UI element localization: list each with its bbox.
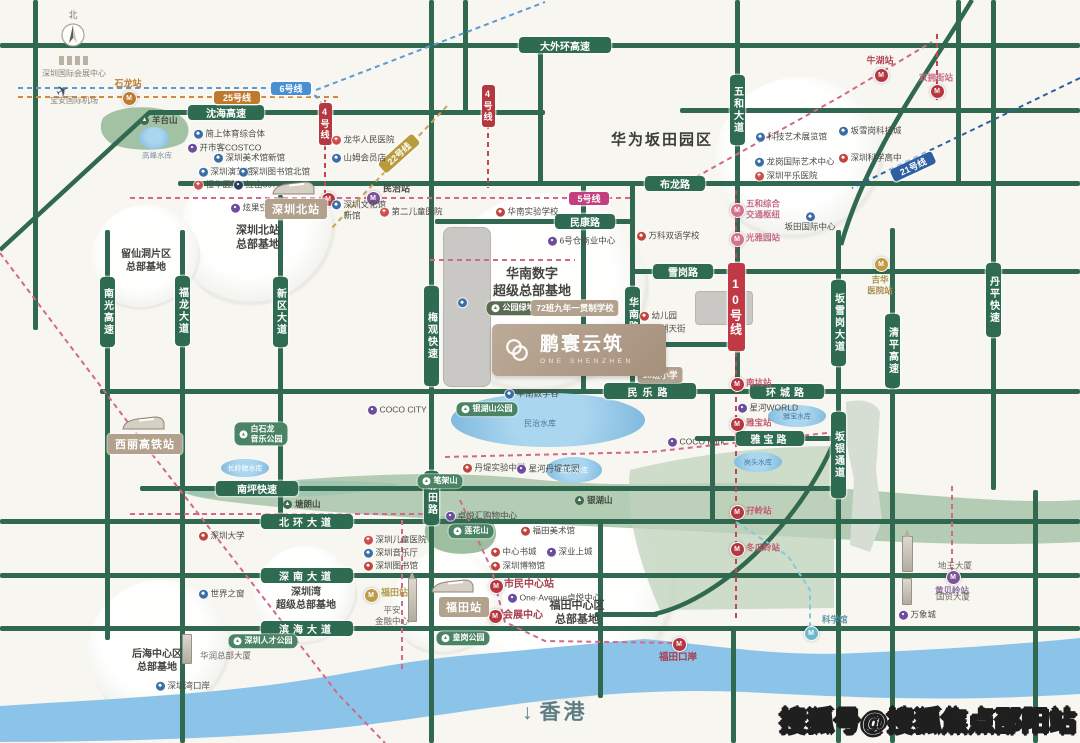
station-label: 光雅园站 (746, 233, 780, 244)
poi-label: 科技艺术展览馆 (768, 132, 828, 143)
park-icon: ▲ (492, 304, 500, 312)
watermark: 搜狐号@搜狐焦点邵阳站 (780, 700, 1076, 739)
poi-icon: ◆ (755, 157, 764, 166)
road (890, 228, 895, 743)
metro-line-badge: 5号线 (569, 192, 609, 205)
poi-icon: ◆ (806, 212, 815, 221)
metro-station-icon: M (730, 542, 745, 557)
poi-icon: ◆ (491, 561, 500, 570)
metro-station-icon: M (730, 417, 745, 432)
map-label: 平安金融中心 (375, 605, 409, 627)
poi-item: ◆ (458, 297, 467, 307)
road-badge: 深南大道 (261, 568, 353, 583)
map-label: 华润总部大厦 (200, 650, 251, 661)
poi-item: ◆简上体育综合体 (194, 129, 266, 140)
poi-item: ◆世界之窗 (199, 589, 245, 600)
poi-icon: ◆ (214, 153, 223, 162)
poi-icon: ◆ (839, 153, 848, 162)
station-label: 雅宝站 (746, 418, 772, 429)
road (731, 628, 736, 743)
poi-label: 深圳图书馆 (376, 561, 419, 572)
road (100, 389, 1080, 394)
road-badge: 布龙路 (645, 176, 705, 191)
tower-icon (408, 578, 417, 622)
map-label: 民乐水库 (560, 466, 588, 475)
metro-station-icon: M (874, 68, 889, 83)
mountain-label: ▲羊台山 (140, 114, 178, 126)
poi-label: 福田美术馆 (533, 526, 576, 537)
poi-icon: ◆ (640, 311, 649, 320)
poi-item: ◆龙岗国际艺术中心 (755, 157, 835, 168)
poi-icon: ◆ (364, 561, 373, 570)
poi-item: ●6号仓商业中心 (548, 236, 616, 247)
poi-item: ◆深圳博物馆 (491, 561, 546, 572)
poi-item: ◆万科双语学校 (637, 231, 700, 242)
park-icon: ▲ (462, 405, 470, 413)
poi-item: ●卓悦汇购物中心 (446, 511, 518, 522)
poi-item: ◆深圳音乐厅 (364, 548, 419, 559)
poi-item: ◆深圳科学高中 (839, 153, 902, 164)
road-badge: 雪岗路 (653, 264, 713, 279)
poi-label: 世界之窗 (211, 589, 245, 600)
arrow-down-icon: ↓ (522, 701, 536, 724)
road-badge: 沈海高速 (188, 105, 264, 120)
poi-icon: ● (368, 405, 377, 414)
poi-label: 第二儿童医院 (392, 207, 443, 218)
road-badge: 北环大道 (261, 514, 353, 529)
road-badge: 福龙大道 (175, 276, 190, 346)
metro-line-badge: 4号线 (319, 103, 332, 145)
road (0, 573, 1080, 578)
rail-station-badge: 西丽高铁站 (108, 434, 182, 454)
poi-icon: ✚ (364, 535, 373, 544)
poi-icon: ◆ (364, 548, 373, 557)
poi-label: 幼儿园 (652, 311, 678, 322)
poi-label: 深圳大学 (211, 531, 245, 542)
metro-station-icon: M (946, 570, 961, 585)
poi-item: ◆坂雪岗科技城 (839, 126, 902, 137)
poi-icon: ● (547, 547, 556, 556)
park-icon: ▲ (442, 634, 450, 642)
compass: 北 (60, 8, 86, 53)
poi-icon: ✚ (332, 135, 341, 144)
map-label: 深圳湾超级总部基地 (276, 586, 336, 612)
poi-item: ◆华南实验学校 (496, 207, 559, 218)
station-label: 石龙站 (114, 78, 141, 89)
poi-label: 华南数字谷 (517, 389, 560, 400)
poi-label: 深圳美术馆新馆 (226, 153, 286, 164)
poi-icon: ● (899, 610, 908, 619)
poi-item: ◆深圳图书馆 (364, 561, 419, 572)
poi-item: ✚龙华人民医院 (332, 135, 395, 146)
tower-icon (182, 634, 192, 664)
road-badge: 梅观快速 (424, 286, 439, 386)
station-label: 民治站 (383, 183, 410, 194)
lake (139, 127, 169, 149)
poi-icon: ● (234, 180, 243, 189)
road (991, 0, 996, 490)
map-label: 雅宝水库 (783, 412, 811, 421)
road (956, 0, 961, 183)
map-label: 民治水库 (524, 419, 556, 429)
poi-label: 深圳博物馆 (503, 561, 546, 572)
road-badge: 大外环高速 (519, 37, 611, 53)
station-label: 会展中心 (503, 610, 543, 623)
mountain-label: ▲银湖山 (575, 494, 613, 506)
map-label: 深圳国际会展中心 (42, 69, 106, 79)
tower-icon (902, 536, 913, 572)
poi-icon: ◆ (332, 153, 341, 162)
poi-label: COCO Park (680, 437, 725, 448)
poi-label: 山姆会员店 (344, 153, 387, 164)
road-badge: 坂银通道 (831, 412, 846, 498)
park-badge: ▲深圳人才公园 (229, 634, 298, 648)
map-label: 地王大厦 (938, 560, 972, 571)
metro-station-icon: M (730, 505, 745, 520)
poi-item: ✚第二儿童医院 (380, 207, 443, 218)
poi-item: ◆深圳文化馆新馆 (332, 199, 387, 220)
poi-label: 万科双语学校 (649, 231, 700, 242)
mountain-icon: ▲ (283, 500, 292, 509)
map-label: 高峰水库 (142, 151, 172, 161)
map-label: 国贸大厦 (936, 591, 970, 602)
poi-icon: ◆ (637, 231, 646, 240)
map-label: 岗头水库 (744, 458, 772, 467)
road-badge: 民康路 (555, 214, 615, 229)
poi-icon: ✚ (194, 180, 203, 189)
metro-station-icon: M (364, 588, 379, 603)
poi-icon: ● (738, 403, 747, 412)
poi-icon: ● (231, 203, 240, 212)
poi-icon: ◆ (756, 132, 765, 141)
poi-label: 深圳湾口岸 (168, 681, 211, 692)
metro-station-icon: M (874, 257, 889, 272)
poi-item: ◆深圳湾口岸 (156, 681, 211, 692)
station-label: 市民中心站 (504, 579, 554, 592)
rail-station-badge: 福田站 (439, 597, 489, 617)
poi-icon: ● (668, 437, 677, 446)
poi-icon: ◆ (463, 463, 472, 472)
poi-icon: ◆ (194, 129, 203, 138)
poi-icon: ◆ (199, 167, 208, 176)
station-label: 科学馆 (822, 615, 848, 626)
road-badge: 雅宝路 (736, 431, 804, 446)
mountain-icon: ▲ (140, 116, 149, 125)
poi-icon: ● (446, 511, 455, 520)
station-label: 吉华医院站 (867, 274, 893, 295)
map-label: 深圳北站总部基地 (236, 224, 280, 253)
map-label: 宝安国际机场 (50, 96, 98, 106)
station-label: 福田口岸 (659, 652, 697, 664)
poi-icon: ● (188, 143, 197, 152)
park-badge: ▲白石龙音乐公园 (235, 422, 288, 445)
park-badge: ▲莲花山 (449, 524, 494, 538)
poi-item: ◆华南数字谷 (505, 389, 560, 400)
road (710, 391, 715, 523)
poi-item: ◆幼儿园 (640, 311, 678, 322)
map-label: 福田中心区总部基地 (550, 599, 605, 628)
station-label: 五和综合交通枢纽 (746, 198, 780, 219)
poi-icon: ✚ (755, 171, 764, 180)
logo-subtitle: ONE SHENZHEN (540, 358, 634, 365)
park-icon: ▲ (423, 477, 431, 485)
poi-item: ●深业上城 (547, 547, 593, 558)
north-label: 北 (60, 8, 86, 21)
metro-station-icon: M (804, 626, 819, 641)
tower-spike (409, 571, 415, 579)
road-badge: 坂雪岗大道 (831, 280, 846, 366)
road (0, 626, 1080, 631)
station-label: 南坑站 (746, 378, 772, 389)
metro-station-icon: M (730, 377, 745, 392)
metro-line-badge: 4号线 (482, 85, 495, 127)
poi-icon: ◆ (239, 167, 248, 176)
poi-label: 龙岗国际艺术中心 (767, 157, 835, 168)
poi-icon: ● (517, 464, 526, 473)
park-icon: ▲ (454, 527, 462, 535)
project-logo-card: 鹏寰云筑 ONE SHENZHEN (492, 324, 666, 376)
building-block (443, 227, 491, 387)
poi-icon: ◆ (839, 126, 848, 135)
poi-item: ◆科技艺术展览馆 (756, 132, 828, 143)
poi-label: 深圳图书馆北馆 (251, 167, 311, 178)
poi-label: 深圳平乐医院 (767, 171, 818, 182)
park-badge: ▲银湖山公园 (457, 402, 518, 416)
poi-label: 深圳音乐厅 (376, 548, 419, 559)
park-badge: ▲笔架山 (418, 474, 463, 488)
poi-item: ◆深圳大学 (199, 531, 245, 542)
metro-station-icon: M (730, 232, 745, 247)
map-label: 留仙洞片区总部基地 (121, 248, 171, 274)
poi-icon: ◆ (458, 298, 467, 307)
metro-station-icon: M (730, 203, 745, 218)
poi-icon: ◆ (521, 526, 530, 535)
poi-item: ◆ (806, 211, 815, 221)
map-label: 坂田国际中心 (784, 221, 835, 232)
map-label: 长岭陂水库 (228, 464, 263, 473)
station-label: 孖岭站 (746, 506, 772, 517)
rail-station-badge: 深圳北站 (265, 199, 327, 219)
poi-item: ✚深圳平乐医院 (755, 171, 818, 182)
poi-icon: ◆ (199, 531, 208, 540)
park-icon: ▲ (240, 430, 248, 438)
poi-item: ◆深圳图书馆北馆 (239, 167, 311, 178)
metro-station-icon: M (672, 637, 687, 652)
park-icon: ▲ (234, 637, 242, 645)
poi-label: 坂雪岗科技城 (851, 126, 902, 137)
logo-title: 鹏寰云筑 (540, 335, 634, 354)
station-label: 牛湖站 (866, 55, 893, 66)
poi-label: 中心书城 (503, 547, 537, 558)
poi-icon: ◆ (505, 389, 514, 398)
poi-item: ✚深圳儿童医院 (364, 535, 427, 546)
poi-icon: ● (548, 236, 557, 245)
tower-icon (902, 578, 912, 605)
metro-station-icon: M (489, 579, 504, 594)
station-label: 双拥街站 (919, 73, 953, 84)
poi-label: 卓悦汇购物中心 (458, 511, 518, 522)
metro-station-icon: M (488, 609, 503, 624)
poi-label: 简上体育综合体 (206, 129, 266, 140)
poi-icon: ◆ (491, 547, 500, 556)
metro-line-badge: 6号线 (271, 82, 311, 95)
convention-center-icon (59, 56, 89, 65)
metro-line-badge: 25号线 (214, 91, 260, 104)
map-canvas: 北 ✈ 鹏寰云筑 ONE SHENZHEN ↓香港 搜狐号@搜狐焦点邵阳站 大外… (0, 0, 1080, 743)
poi-label: 龙华人民医院 (344, 135, 395, 146)
road-badge: 新区大道 (273, 277, 288, 347)
road (538, 45, 543, 183)
poi-icon: ✚ (380, 207, 389, 216)
poi-icon: ● (508, 593, 517, 602)
road-badge: 南坪快速 (216, 481, 298, 496)
poi-item: ◆山姆会员店 (332, 153, 387, 164)
station-label: 冬瓜岭站 (746, 543, 780, 554)
road-badge: 五和大道 (730, 75, 745, 145)
hongkong-label: ↓香港 (522, 696, 588, 726)
station-label: 福田站 (381, 587, 408, 598)
metro-station-icon: M (930, 84, 945, 99)
tower-spike (904, 529, 910, 537)
poi-item: ●万象城 (899, 610, 937, 621)
road (463, 0, 468, 113)
park-badge: ▲皇岗公园 (437, 631, 490, 645)
poi-label: 深业上城 (559, 547, 593, 558)
road-badge: 丹平快速 (986, 263, 1001, 337)
poi-item: ◆福田美术馆 (521, 526, 576, 537)
map-label: 后海中心区总部基地 (132, 648, 182, 674)
poi-icon: ◆ (332, 200, 341, 209)
road (33, 0, 38, 330)
mountain-label: ▲塘朗山 (283, 498, 321, 510)
compass-icon (60, 22, 86, 48)
poi-label: 6号仓商业中心 (560, 236, 616, 247)
map-label: 华为坂田园区 (611, 130, 713, 150)
poi-label: 万象城 (911, 610, 937, 621)
poi-icon: ◆ (496, 207, 505, 216)
poi-label: 深圳儿童医院 (376, 535, 427, 546)
road-badge: 民乐路 (604, 383, 696, 399)
poi-icon: ◆ (199, 589, 208, 598)
poi-label: 深圳科学高中 (851, 153, 902, 164)
metro-line-badge: 10号线 (728, 263, 745, 351)
poi-label: 华南实验学校 (508, 207, 559, 218)
road-badge: 南光高速 (100, 277, 115, 347)
poi-icon: ◆ (156, 681, 165, 690)
mountain-icon: ▲ (575, 496, 584, 505)
logo-knot-icon (502, 335, 532, 365)
metro-station-icon: M (122, 91, 137, 106)
poi-item: ◆深圳美术馆新馆 (214, 153, 286, 164)
road (0, 519, 1080, 524)
poi-item: ●COCO CITY (368, 405, 427, 416)
road-badge: 清平高速 (885, 314, 900, 388)
school-plan-badge: 72班九年一贯制学校 (531, 300, 618, 316)
poi-item: ●COCO Park (668, 437, 725, 448)
poi-label: COCO CITY (380, 405, 427, 416)
map-label: 华南数字超级总部基地 (493, 266, 571, 300)
poi-item: ◆中心书城 (491, 547, 537, 558)
